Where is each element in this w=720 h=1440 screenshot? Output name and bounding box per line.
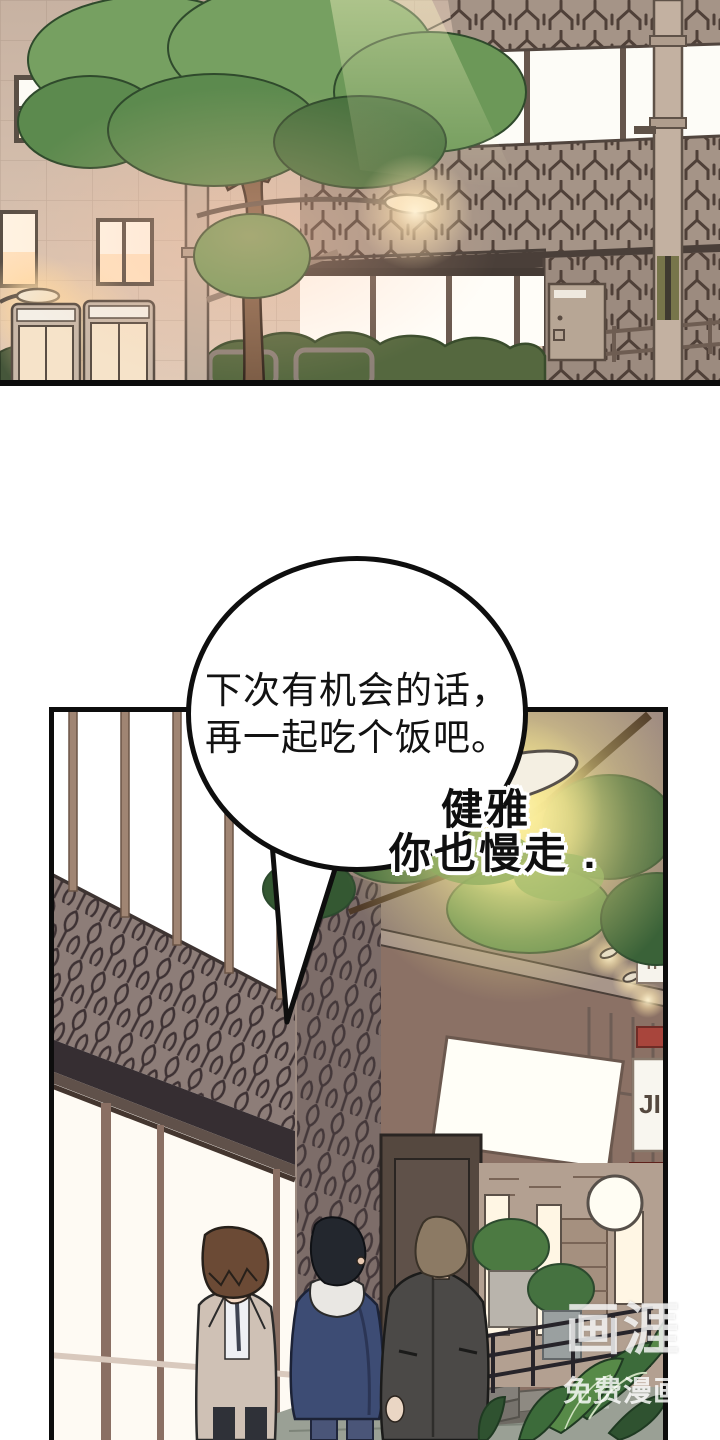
round-sign bbox=[588, 1176, 642, 1230]
vertical-shop-sign-text: JI bbox=[639, 1089, 661, 1119]
watermark: 画涯 免费漫画 bbox=[548, 1300, 698, 1410]
watermark-subtitle: 免费漫画 bbox=[548, 1368, 698, 1410]
comic-page: ri JI bbox=[0, 0, 720, 1440]
caption-line2: 你也慢走 . bbox=[389, 820, 598, 881]
panel-top-street-scene bbox=[0, 0, 720, 386]
vertical-shop-sign: JI bbox=[633, 1059, 668, 1151]
speech-bubble-line1: 下次有机会的话， bbox=[205, 667, 509, 714]
hair-middle-man bbox=[311, 1217, 365, 1285]
hair-right-man bbox=[416, 1217, 468, 1277]
character-left bbox=[196, 1227, 276, 1440]
street-kiosk bbox=[549, 284, 605, 360]
watermark-logo: 画涯 bbox=[548, 1300, 698, 1360]
hair-left-man bbox=[203, 1227, 268, 1298]
warm-corner-glow bbox=[0, 86, 500, 386]
hand-right-man bbox=[386, 1396, 404, 1422]
panel1-bottom-border bbox=[0, 380, 720, 386]
speech-bubble-line2: 再一起吃个饭吧。 bbox=[205, 714, 509, 761]
